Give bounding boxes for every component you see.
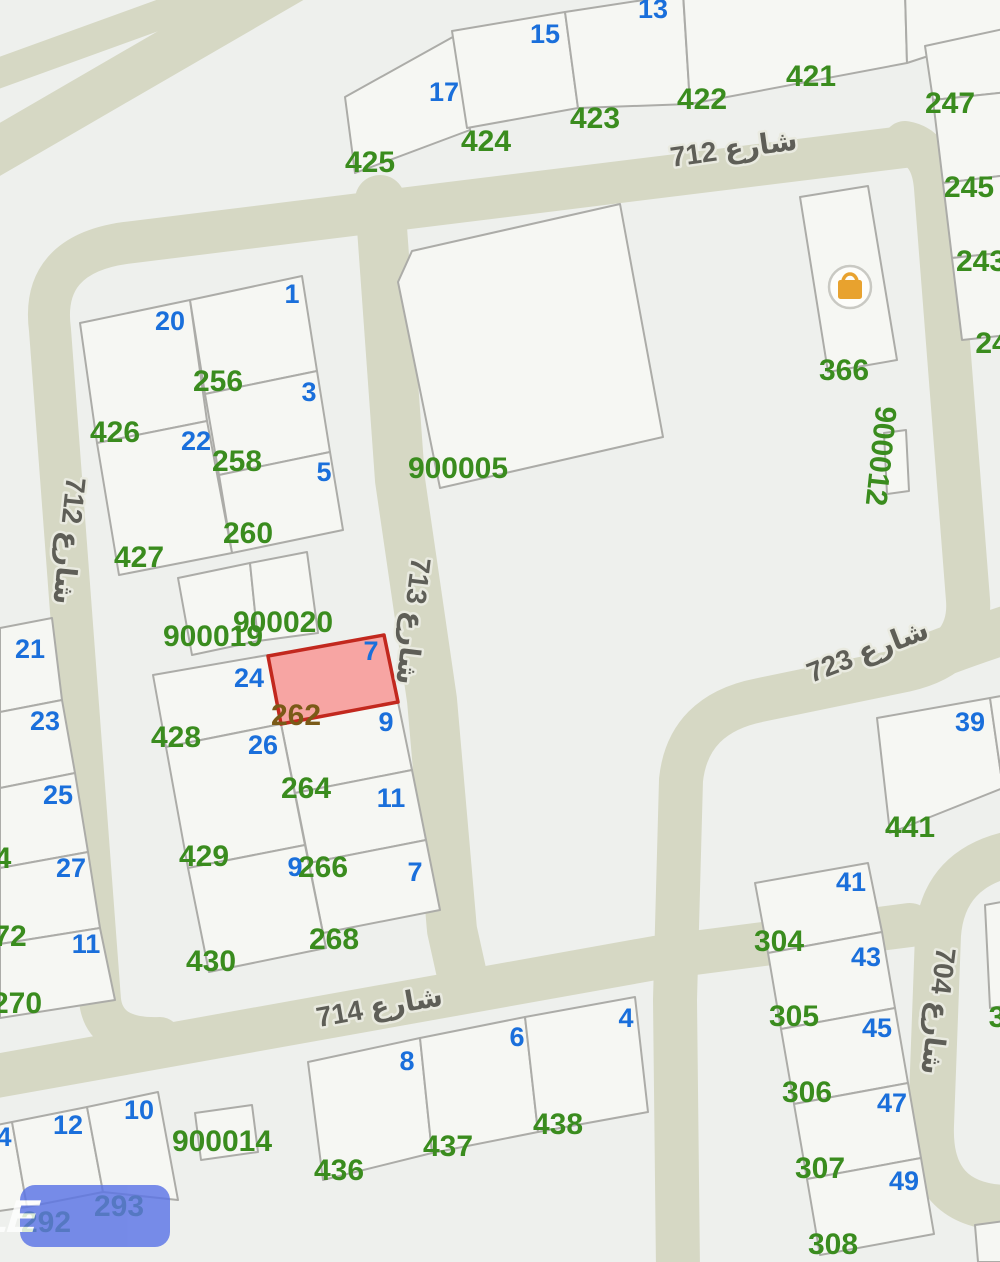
house-number-label: 24 <box>234 663 264 693</box>
plot-21 <box>0 618 62 712</box>
house-number-label: 17 <box>429 77 459 107</box>
house-number-label: 13 <box>638 0 668 24</box>
parcel-number-label: 245 <box>944 171 994 204</box>
parcel-number-label: 4 <box>0 842 12 875</box>
parcel-number-label: 260 <box>223 517 273 550</box>
parcel-number-label: 900005 <box>408 452 508 485</box>
parcel-number-label: 304 <box>754 925 804 958</box>
watermark-background <box>20 1185 170 1247</box>
plot-13 <box>565 0 690 108</box>
parcel-number-label: 441 <box>885 811 935 844</box>
parcel-number-label: 270 <box>0 987 42 1020</box>
parcel-number-label: 428 <box>151 721 201 754</box>
parcel-number-label: 436 <box>314 1154 364 1187</box>
parcel-number-label: 24 <box>975 327 1000 360</box>
plot-corner-partial <box>975 1220 1000 1262</box>
parcel-number-label: 422 <box>677 83 727 116</box>
parcel-number-label: 3 <box>989 1001 1000 1034</box>
parcel-map-canvas: شارع 712شارع 712شارع 713شارع 714شارع 723… <box>0 0 1000 1262</box>
house-number-label: 15 <box>530 19 560 49</box>
house-number-label: 43 <box>851 942 881 972</box>
house-number-label: 6 <box>509 1022 524 1052</box>
parcel-number-label: 421 <box>786 60 836 93</box>
house-number-label: 20 <box>155 306 185 336</box>
house-number-label: 4 <box>0 1122 12 1152</box>
house-number-label: 3 <box>301 377 316 407</box>
parcel-number-label: 426 <box>90 416 140 449</box>
parcel-number-label: 268 <box>309 923 359 956</box>
house-number-label: 41 <box>836 867 866 897</box>
house-number-label: 12 <box>53 1110 83 1140</box>
house-number-label: 21 <box>15 634 45 664</box>
house-number-label: 45 <box>862 1013 892 1043</box>
parcel-number-label: 424 <box>461 125 511 158</box>
parcel-number-label: 429 <box>179 840 229 873</box>
house-number-label: 10 <box>124 1095 154 1125</box>
house-number-label: 23 <box>30 706 60 736</box>
parcel-number-label: 72 <box>0 920 27 953</box>
parcel-number-label: 427 <box>114 541 164 574</box>
parcel-number-label: 437 <box>423 1130 473 1163</box>
house-number-label: 22 <box>181 426 211 456</box>
house-number-label: 39 <box>955 707 985 737</box>
house-number-label: 7 <box>363 636 378 666</box>
house-number-label: 25 <box>43 780 73 810</box>
house-number-label: 11 <box>377 783 406 813</box>
house-number-label: 5 <box>316 457 331 487</box>
parcel-number-label: 308 <box>808 1228 858 1261</box>
house-number-label: 47 <box>877 1088 907 1118</box>
parcel-number-label: 264 <box>281 772 331 805</box>
house-number-label: 26 <box>248 730 278 760</box>
house-number-label: 11 <box>72 929 101 959</box>
house-number-label: 7 <box>407 857 422 887</box>
shopping-bag-icon-body <box>838 280 862 299</box>
listing-marker[interactable] <box>829 266 871 308</box>
parcel-number-label: 430 <box>186 945 236 978</box>
parcel-number-label: 900014 <box>172 1125 272 1158</box>
watermark: 4SALE <box>0 1185 170 1247</box>
parcel-number-label: 247 <box>925 87 975 120</box>
house-number-label: 27 <box>56 853 86 883</box>
parcel-number-label: 307 <box>795 1152 845 1185</box>
parcel-number-label: 423 <box>570 102 620 135</box>
parcel-number-label: 305 <box>769 1000 819 1033</box>
parcel-number-label: 256 <box>193 365 243 398</box>
house-number-label: 1 <box>284 279 299 309</box>
house-number-label: 8 <box>399 1046 414 1076</box>
house-number-label: 4 <box>618 1003 633 1033</box>
plot-900005 <box>398 204 663 488</box>
house-number-label: 49 <box>889 1166 919 1196</box>
house-number-label: 9 <box>287 852 302 882</box>
parcel-number-label: 262 <box>271 699 321 732</box>
parcel-number-label: 258 <box>212 445 262 478</box>
parcel-number-label: 900020 <box>233 606 333 639</box>
parcel-number-label: 438 <box>533 1108 583 1141</box>
parcel-number-label: 366 <box>819 354 869 387</box>
parcel-number-label: 306 <box>782 1076 832 1109</box>
parcel-number-label: 266 <box>298 851 348 884</box>
parcel-number-label: 425 <box>345 146 395 179</box>
house-number-label: 9 <box>378 707 393 737</box>
parcel-number-label: 243 <box>956 245 1000 278</box>
map-stage: شارع 712شارع 712شارع 713شارع 714شارع 723… <box>0 0 1000 1262</box>
